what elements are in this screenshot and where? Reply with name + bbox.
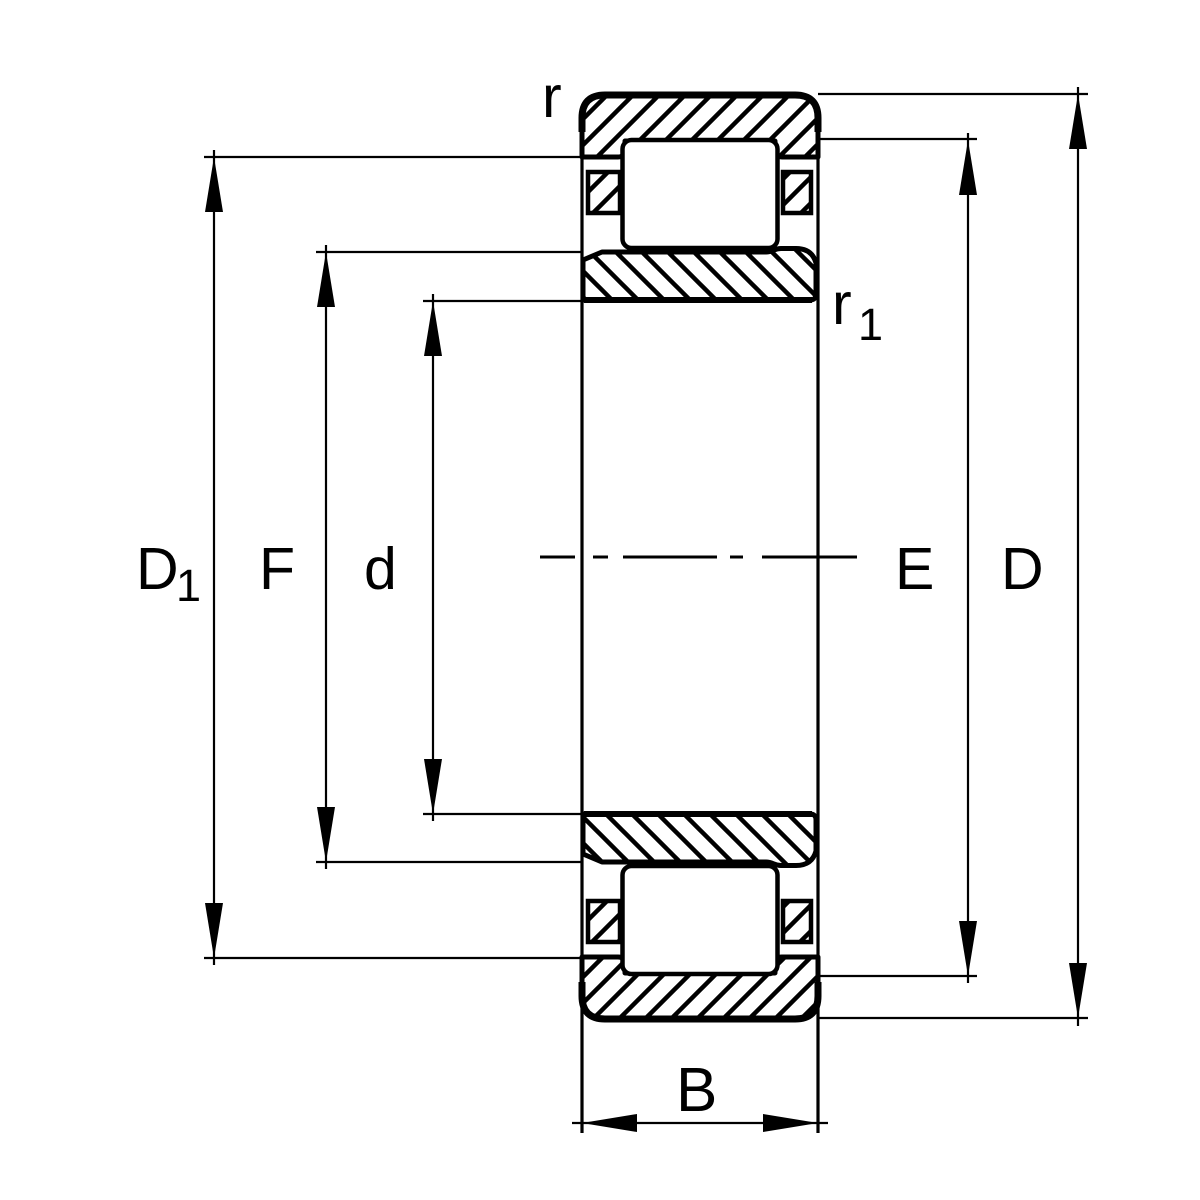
cage-bar-top-right [783,172,811,213]
label-r1: r [832,271,852,337]
bearing-dimension-diagram: D 1 F d r r 1 E D B [0,0,1200,1200]
label-D1-subscript: 1 [176,560,201,611]
arrow-d-down [424,759,442,814]
arrow-d-up [424,301,442,356]
label-D: D [1001,536,1044,602]
label-r: r [542,64,562,130]
cage-bar-top-left [588,172,620,213]
label-F: F [259,536,295,602]
label-d: d [364,536,397,602]
inner-ring-bottom-section [583,814,816,866]
cage-bar-bottom-right [783,901,811,942]
roller-top [623,140,778,248]
label-r1-subscript: 1 [858,299,883,350]
inner-ring-top-section [583,249,816,301]
arrow-F-down [317,807,335,862]
diagram-canvas: D 1 F d r r 1 E D B [0,0,1200,1200]
arrow-B-right [763,1114,818,1132]
arrow-D-up [1069,94,1087,149]
cage-bar-bottom-left [588,901,620,942]
arrow-D1-up [205,157,223,212]
label-D1: D [136,536,179,602]
arrow-E-down [959,921,977,976]
label-B: B [676,1056,717,1125]
roller-bottom [623,866,778,974]
label-E: E [895,536,934,602]
arrow-F-up [317,252,335,307]
arrow-D-down [1069,963,1087,1018]
arrow-D1-down [205,903,223,958]
arrow-B-left [582,1114,637,1132]
arrow-E-up [959,140,977,195]
